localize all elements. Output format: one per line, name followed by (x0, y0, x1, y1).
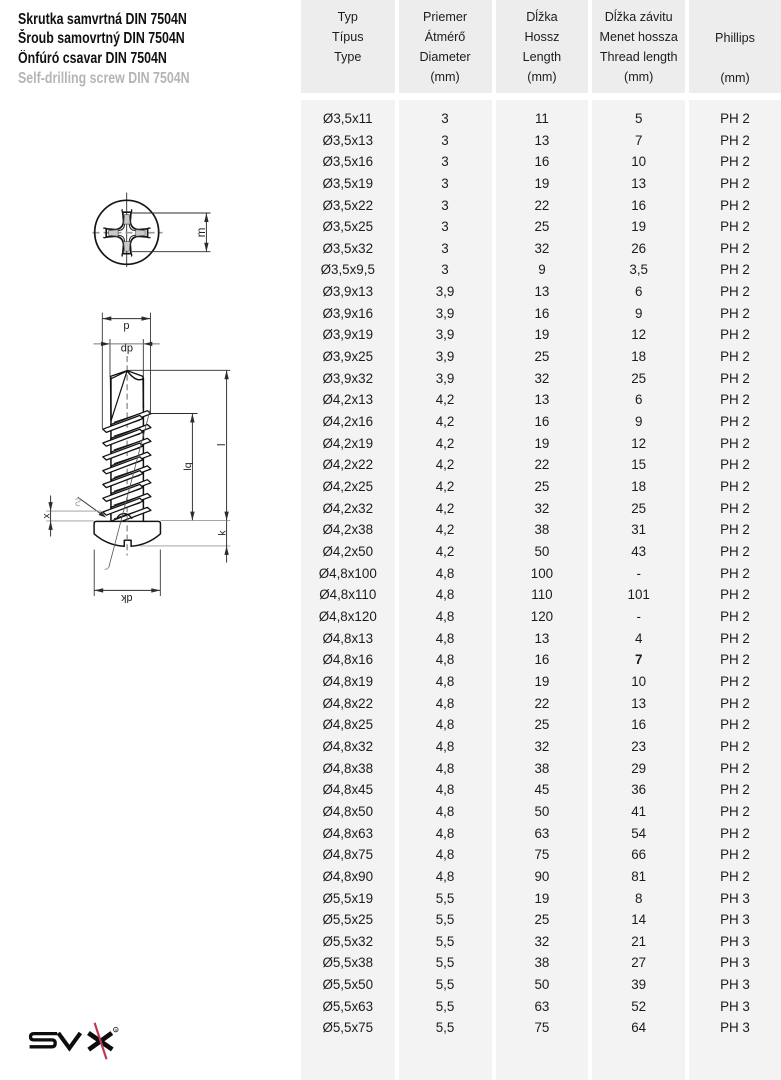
svg-text:lq: lq (182, 462, 194, 470)
svg-text:x: x (41, 513, 53, 519)
svg-text:dk: dk (120, 592, 132, 604)
svg-text:m: m (196, 228, 208, 238)
svg-text:p: p (123, 320, 129, 332)
svg-text:k: k (217, 530, 229, 536)
svg-text:l: l (216, 444, 228, 446)
svg-text:dp: dp (121, 343, 133, 355)
